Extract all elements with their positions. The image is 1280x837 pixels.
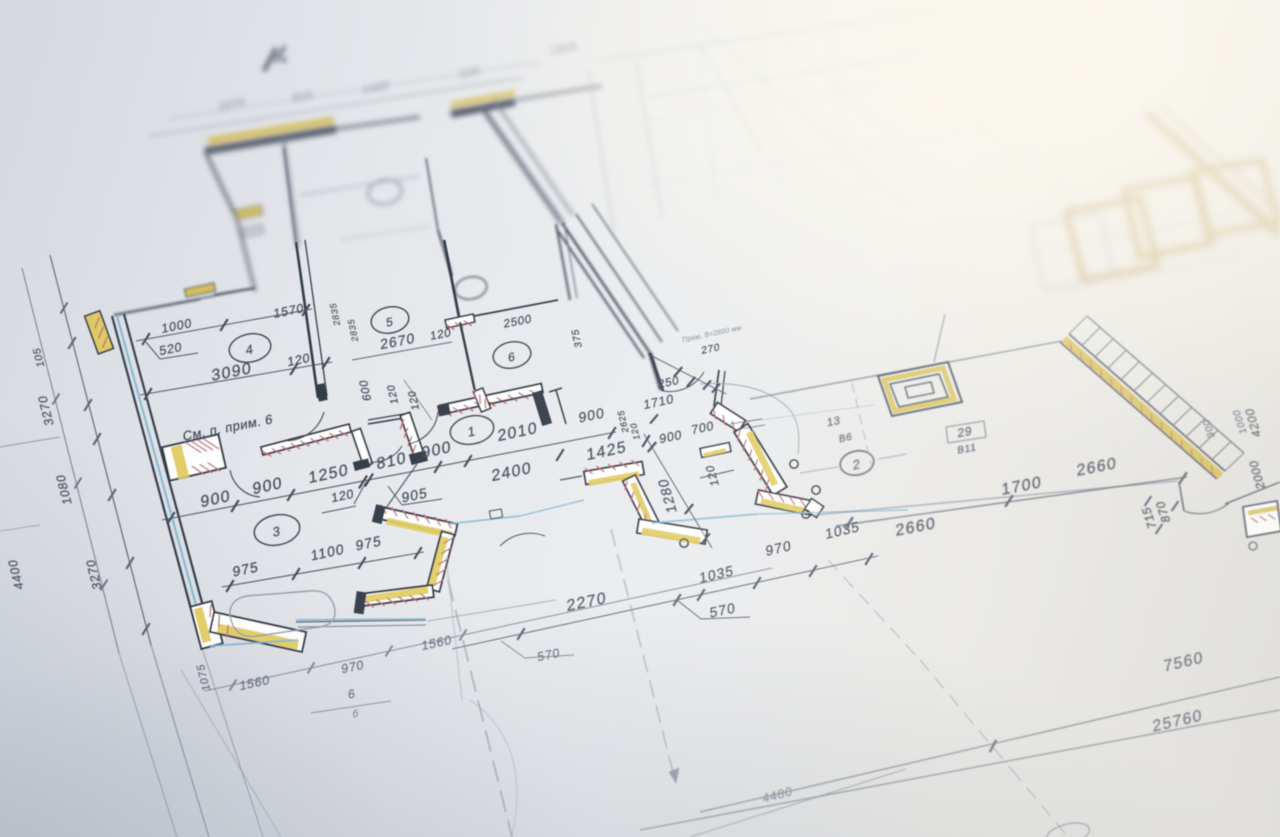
svg-text:3: 3 bbox=[273, 523, 281, 540]
svg-text:2: 2 bbox=[853, 456, 861, 473]
svg-text:520: 520 bbox=[159, 340, 182, 359]
svg-text:б: б bbox=[352, 707, 359, 720]
svg-text:600: 600 bbox=[358, 379, 375, 401]
svg-text:В11: В11 bbox=[957, 442, 976, 456]
svg-text:900: 900 bbox=[659, 428, 682, 447]
svg-text:905: 905 bbox=[401, 484, 428, 506]
svg-text:1000: 1000 bbox=[161, 316, 192, 336]
svg-text:2835: 2835 bbox=[328, 303, 342, 326]
svg-text:975: 975 bbox=[232, 558, 259, 580]
svg-text:1560: 1560 bbox=[421, 633, 452, 654]
svg-text:3270: 3270 bbox=[35, 395, 57, 426]
svg-text:900: 900 bbox=[252, 474, 283, 499]
svg-text:2835: 2835 bbox=[346, 319, 360, 342]
svg-text:1035: 1035 bbox=[825, 518, 861, 542]
svg-text:2625: 2625 bbox=[615, 410, 630, 433]
svg-text:3270: 3270 bbox=[83, 559, 105, 590]
svg-text:Прим. В=2600 мм: Прим. В=2600 мм bbox=[682, 325, 741, 345]
svg-text:В6: В6 bbox=[839, 432, 853, 446]
svg-text:970: 970 bbox=[765, 537, 792, 559]
svg-text:120: 120 bbox=[628, 422, 642, 440]
svg-text:270: 270 bbox=[701, 342, 720, 357]
svg-text:1080: 1080 bbox=[53, 474, 75, 505]
svg-text:975: 975 bbox=[355, 532, 382, 554]
svg-text:25760: 25760 bbox=[1152, 706, 1203, 736]
svg-text:6: 6 bbox=[348, 686, 356, 702]
svg-text:5: 5 bbox=[386, 314, 394, 330]
svg-text:1280: 1280 bbox=[654, 478, 680, 514]
svg-text:1560: 1560 bbox=[239, 673, 270, 694]
svg-text:2000: 2000 bbox=[1246, 459, 1268, 489]
svg-text:105: 105 bbox=[31, 347, 48, 367]
svg-text:29: 29 bbox=[957, 424, 972, 441]
svg-text:250: 250 bbox=[658, 375, 680, 392]
svg-text:1400: 1400 bbox=[362, 80, 389, 97]
svg-text:1700: 1700 bbox=[1001, 473, 1042, 499]
svg-text:1: 1 bbox=[468, 423, 476, 440]
svg-text:375: 375 bbox=[570, 329, 585, 348]
svg-text:4: 4 bbox=[246, 341, 254, 358]
svg-text:120: 120 bbox=[385, 384, 401, 404]
svg-text:810: 810 bbox=[376, 449, 407, 474]
svg-text:2400: 2400 bbox=[491, 459, 532, 486]
svg-text:120: 120 bbox=[430, 327, 452, 343]
svg-text:См. п. прим. 6: См. п. прим. 6 bbox=[183, 411, 274, 444]
svg-text:1100: 1100 bbox=[310, 540, 345, 563]
svg-text:120: 120 bbox=[406, 390, 422, 410]
svg-text:570: 570 bbox=[537, 646, 560, 665]
svg-text:1075: 1075 bbox=[195, 663, 214, 691]
svg-text:900: 900 bbox=[578, 404, 605, 426]
svg-text:1800: 1800 bbox=[550, 41, 577, 58]
svg-text:2660: 2660 bbox=[1076, 454, 1117, 480]
svg-text:900: 900 bbox=[421, 438, 452, 463]
svg-text:4400: 4400 bbox=[5, 559, 27, 590]
svg-text:2500: 2500 bbox=[504, 313, 533, 331]
svg-text:700: 700 bbox=[691, 419, 714, 438]
svg-text:1710: 1710 bbox=[643, 392, 674, 413]
svg-text:1250: 1250 bbox=[308, 461, 349, 488]
svg-text:7560: 7560 bbox=[1163, 648, 1204, 675]
svg-text:2660: 2660 bbox=[895, 514, 936, 540]
svg-text:13: 13 bbox=[827, 415, 841, 430]
svg-text:2010: 2010 bbox=[497, 419, 538, 446]
svg-text:120: 120 bbox=[331, 487, 354, 506]
svg-text:1570: 1570 bbox=[273, 301, 304, 321]
svg-text:1425: 1425 bbox=[586, 438, 627, 465]
svg-text:6: 6 bbox=[508, 349, 516, 365]
